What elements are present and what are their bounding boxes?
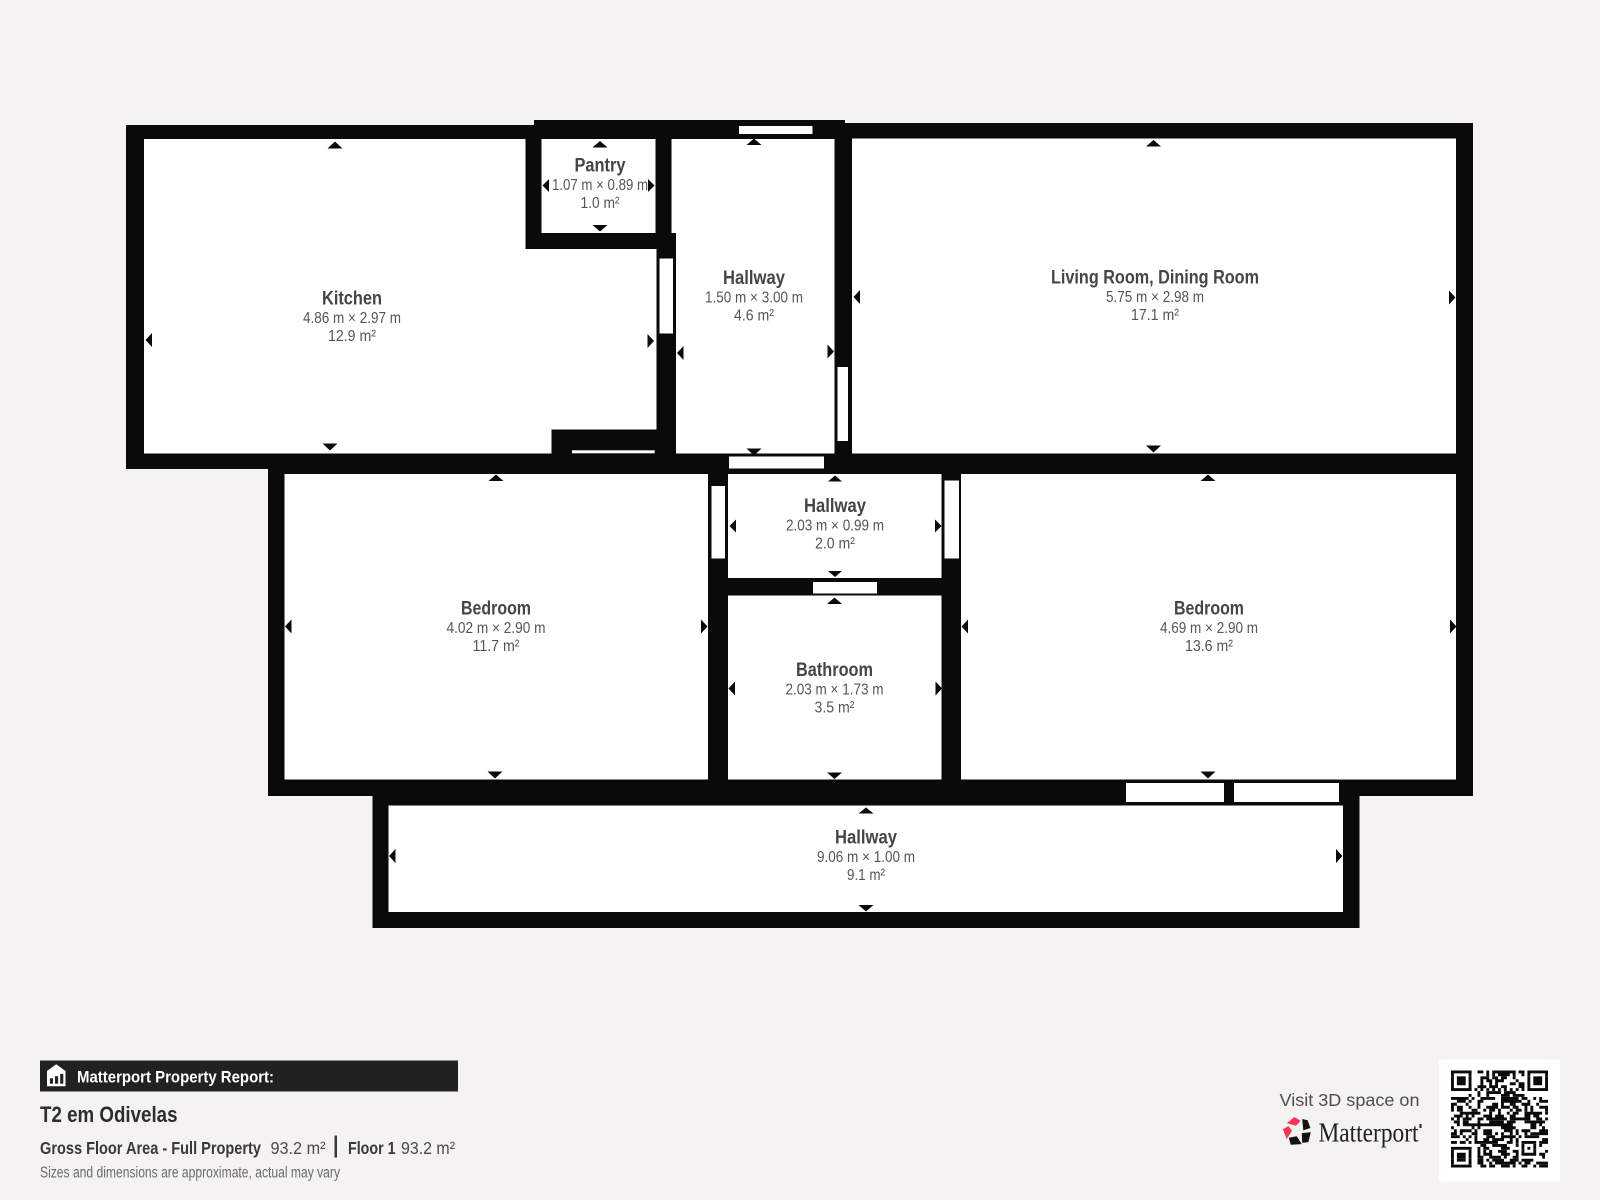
svg-text:5.75 m × 2.98 m: 5.75 m × 2.98 m xyxy=(1106,289,1204,306)
svg-text:9.06 m × 1.00 m: 9.06 m × 1.00 m xyxy=(817,849,915,866)
svg-text:93.2 m²: 93.2 m² xyxy=(401,1138,455,1158)
svg-text:Bedroom: Bedroom xyxy=(461,599,531,620)
svg-text:Sizes and dimensions are appro: Sizes and dimensions are approximate, ac… xyxy=(40,1165,340,1182)
svg-text:3.5 m²: 3.5 m² xyxy=(815,700,856,717)
svg-text:Hallway: Hallway xyxy=(723,268,785,289)
svg-text:Matterport: Matterport xyxy=(1319,1117,1419,1148)
svg-text:2.03 m × 1.73 m: 2.03 m × 1.73 m xyxy=(786,682,884,699)
svg-text:93.2 m²: 93.2 m² xyxy=(271,1138,326,1158)
svg-text:1.50 m × 3.00 m: 1.50 m × 3.00 m xyxy=(705,290,803,307)
svg-text:11.7 m²: 11.7 m² xyxy=(473,638,521,655)
svg-text:Bedroom: Bedroom xyxy=(1174,599,1244,620)
svg-text:Living Room, Dining Room: Living Room, Dining Room xyxy=(1051,268,1259,289)
svg-text:Bathroom: Bathroom xyxy=(796,660,873,681)
svg-text:13.6 m²: 13.6 m² xyxy=(1185,638,1234,655)
svg-text:Pantry: Pantry xyxy=(575,156,626,177)
svg-text:4.69 m × 2.90 m: 4.69 m × 2.90 m xyxy=(1160,620,1258,637)
svg-text:Kitchen: Kitchen xyxy=(322,289,382,310)
svg-text:4.86 m × 2.97 m: 4.86 m × 2.97 m xyxy=(303,310,401,327)
svg-text:Hallway: Hallway xyxy=(835,828,897,849)
svg-text:1.0 m²: 1.0 m² xyxy=(581,195,621,212)
svg-text:Visit 3D space on: Visit 3D space on xyxy=(1280,1090,1420,1110)
svg-text:12.9 m²: 12.9 m² xyxy=(328,328,377,345)
svg-text:Gross Floor Area - Full Proper: Gross Floor Area - Full Property xyxy=(40,1138,261,1158)
svg-text:9.1 m²: 9.1 m² xyxy=(847,867,886,884)
svg-text:1.07 m × 0.89 m: 1.07 m × 0.89 m xyxy=(552,177,648,194)
svg-text:T2 em Odivelas: T2 em Odivelas xyxy=(40,1102,178,1127)
svg-text:Hallway: Hallway xyxy=(804,496,866,517)
svg-text:Floor 1: Floor 1 xyxy=(348,1138,396,1158)
svg-text:17.1 m²: 17.1 m² xyxy=(1131,307,1180,324)
svg-text:2.0 m²: 2.0 m² xyxy=(815,536,856,553)
svg-text:Matterport Property Report:: Matterport Property Report: xyxy=(77,1068,274,1087)
svg-text:4.6 m²: 4.6 m² xyxy=(734,308,775,325)
svg-text:4.02 m × 2.90 m: 4.02 m × 2.90 m xyxy=(447,620,546,637)
svg-text:2.03 m × 0.99 m: 2.03 m × 0.99 m xyxy=(786,518,884,535)
